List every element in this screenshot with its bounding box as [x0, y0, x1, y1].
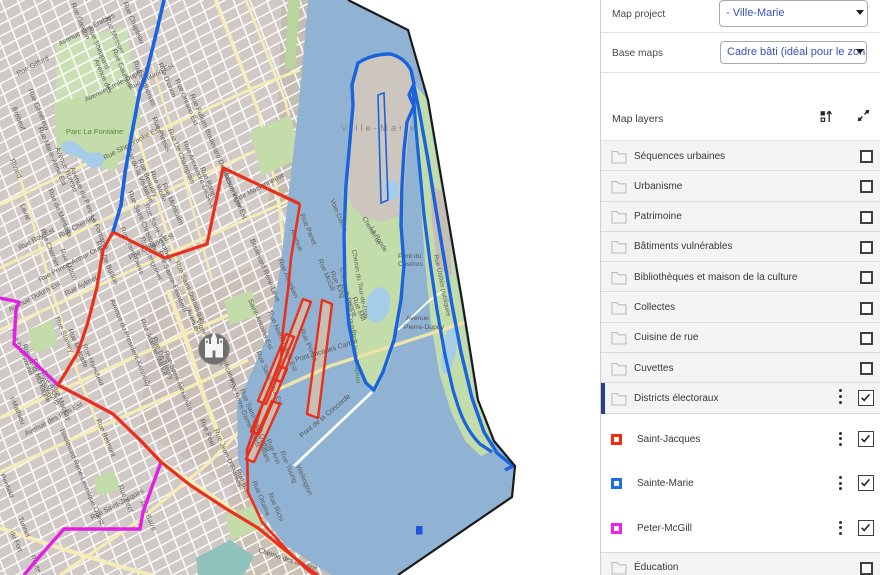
svg-text:Cosmos: Cosmos	[398, 261, 424, 268]
svg-text:Parc La Fontaine: Parc La Fontaine	[66, 127, 123, 136]
svg-text:Avenue: Avenue	[406, 315, 429, 322]
